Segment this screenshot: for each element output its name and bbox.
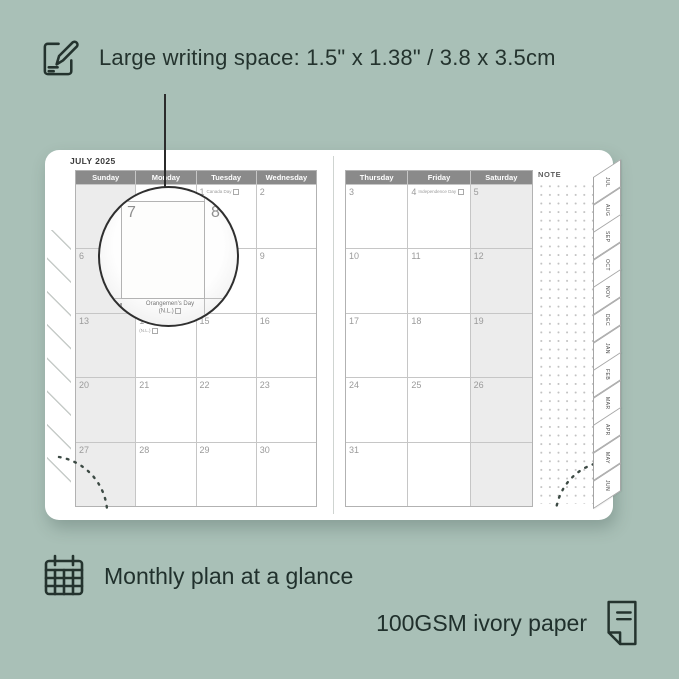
day-cell xyxy=(471,443,532,506)
day-cell: 21 xyxy=(136,378,195,441)
day-cell xyxy=(408,443,469,506)
day-cell: 4Independence Day xyxy=(408,185,469,248)
magnified-holiday-region: (N.L.) xyxy=(159,309,174,315)
day-cell: 25 xyxy=(408,378,469,441)
holiday-checkbox-icon xyxy=(458,189,464,195)
magnified-day-7: 7 xyxy=(127,204,136,222)
day-header: Tuesday xyxy=(197,171,256,184)
product-showcase: Large writing space: 1.5" x 1.38" / 3.8 … xyxy=(0,0,679,679)
holiday-checkbox-icon xyxy=(152,328,158,334)
day-cell: 11 xyxy=(408,249,469,312)
day-header: Friday xyxy=(408,171,469,184)
calendar-grid-icon xyxy=(40,552,88,600)
day-cell: 30 xyxy=(257,443,316,506)
day-header: Wednesday xyxy=(257,171,316,184)
day-cell: 15 xyxy=(197,314,256,377)
callout-line xyxy=(164,94,166,193)
month-title: JULY 2025 xyxy=(70,156,116,166)
day-cell: 2 xyxy=(257,185,316,248)
day-cell: 31 xyxy=(346,443,407,506)
top-annotation: Large writing space: 1.5" x 1.38" / 3.8 … xyxy=(38,34,556,81)
day-cell: 3 xyxy=(346,185,407,248)
holiday-checkbox-icon xyxy=(175,308,181,314)
magnified-day-8: 8 xyxy=(211,204,220,222)
day-cell: 28 xyxy=(136,443,195,506)
day-cell: 29 xyxy=(197,443,256,506)
paper-spec-text: 100GSM ivory paper xyxy=(376,610,587,637)
page-edge-hatching xyxy=(47,230,71,490)
day-cell: 13 xyxy=(76,314,135,377)
day-cell: 5 xyxy=(471,185,532,248)
note-column: NOTE xyxy=(537,170,597,505)
day-header: Saturday xyxy=(471,171,532,184)
day-cell: 18 xyxy=(408,314,469,377)
note-label: NOTE xyxy=(538,170,561,179)
month-tabs: JULAUGSEPOCTNOVDECJANFEBMARAPRMAYJUN xyxy=(593,150,623,520)
day-header: Thursday xyxy=(346,171,407,184)
magnifier-circle: 7 8 14 Orangemen's Day (N.L.) xyxy=(98,186,239,327)
day-cell: 10 xyxy=(346,249,407,312)
day-cell: 16 xyxy=(257,314,316,377)
magnified-day-14: 14 xyxy=(109,300,123,315)
day-header: Sunday xyxy=(76,171,135,184)
day-cell: 17 xyxy=(346,314,407,377)
day-cell: 19 xyxy=(471,314,532,377)
day-cell: 20 xyxy=(76,378,135,441)
day-cell: 12 xyxy=(471,249,532,312)
top-annotation-text: Large writing space: 1.5" x 1.38" / 3.8 … xyxy=(99,45,556,71)
pencil-note-icon xyxy=(38,34,85,81)
magnified-holiday-name: Orangemen's Day xyxy=(146,301,194,307)
bottom-annotation-paper: 100GSM ivory paper xyxy=(376,598,643,648)
day-cell: 23 xyxy=(257,378,316,441)
magnified-holiday: Orangemen's Day (N.L.) xyxy=(130,301,210,316)
bottom-annotation-monthly: Monthly plan at a glance xyxy=(40,552,353,600)
right-month-grid: ThursdayFridaySaturday34Independence Day… xyxy=(345,170,533,507)
paper-sheet-icon xyxy=(601,598,643,648)
monthly-plan-text: Monthly plan at a glance xyxy=(104,563,353,590)
perforation-arc-left xyxy=(49,453,113,517)
day-cell: 9 xyxy=(257,249,316,312)
day-cell: 22 xyxy=(197,378,256,441)
holiday-checkbox-icon xyxy=(233,189,239,195)
spine-fold xyxy=(333,156,334,514)
day-cell: 26 xyxy=(471,378,532,441)
day-cell: 24 xyxy=(346,378,407,441)
note-dot-grid xyxy=(537,182,597,504)
